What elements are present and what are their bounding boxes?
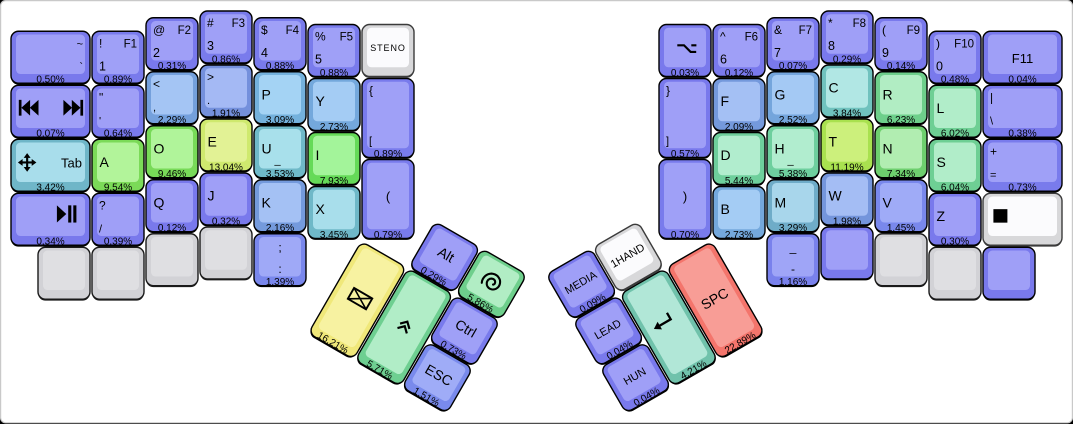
- svg-text:.: .: [207, 95, 210, 107]
- svg-text:0.64%: 0.64%: [104, 129, 132, 140]
- svg-text:2.09%: 2.09%: [725, 122, 753, 133]
- svg-text:F2: F2: [178, 25, 191, 37]
- svg-text:0.07%: 0.07%: [36, 129, 64, 140]
- svg-text:*: *: [828, 16, 833, 30]
- svg-text:I: I: [316, 147, 320, 163]
- svg-text:(: (: [882, 23, 886, 37]
- svg-text:N: N: [883, 140, 893, 156]
- svg-text:J: J: [208, 188, 215, 204]
- svg-text:0.32%: 0.32%: [212, 216, 240, 227]
- svg-text:Z: Z: [937, 208, 946, 224]
- svg-text:11.19%: 11.19%: [830, 162, 863, 173]
- svg-text:_: _: [274, 154, 282, 166]
- svg-text:+: +: [990, 144, 997, 158]
- svg-text:0.89%: 0.89%: [104, 75, 132, 86]
- svg-text:C: C: [829, 80, 839, 96]
- svg-text:F4: F4: [286, 25, 300, 37]
- svg-text:H: H: [775, 140, 785, 156]
- svg-text:F9: F9: [907, 25, 920, 37]
- svg-text:D: D: [721, 147, 731, 163]
- svg-text:=: =: [990, 169, 996, 181]
- svg-text:1.98%: 1.98%: [833, 216, 861, 227]
- svg-text:0.88%: 0.88%: [320, 68, 348, 79]
- svg-text:): ): [683, 189, 687, 204]
- svg-text:6.02%: 6.02%: [941, 129, 969, 140]
- svg-text:0.57%: 0.57%: [671, 149, 699, 160]
- svg-text:M: M: [775, 194, 787, 210]
- svg-text:Y: Y: [316, 93, 326, 109]
- svg-text:2.16%: 2.16%: [266, 223, 294, 234]
- svg-text::: :: [278, 262, 281, 276]
- svg-text:0.79%: 0.79%: [374, 230, 402, 241]
- svg-text:O: O: [154, 140, 165, 156]
- svg-text:5.44%: 5.44%: [725, 176, 753, 187]
- svg-text:9: 9: [882, 46, 889, 60]
- svg-text:2.52%: 2.52%: [779, 115, 807, 126]
- svg-text:6.23%: 6.23%: [887, 115, 915, 126]
- svg-text:@: @: [153, 23, 165, 37]
- svg-text:V: V: [883, 194, 893, 210]
- svg-text:3.42%: 3.42%: [36, 183, 64, 194]
- svg-text:W: W: [829, 188, 843, 204]
- svg-text:0.03%: 0.03%: [671, 68, 699, 79]
- svg-text:G: G: [775, 86, 786, 102]
- svg-text:0.30%: 0.30%: [941, 237, 969, 248]
- svg-text:4: 4: [261, 46, 268, 60]
- svg-text:`: `: [79, 61, 83, 73]
- svg-text:?: ?: [99, 198, 106, 212]
- svg-text:-: -: [791, 262, 795, 276]
- svg-text:Tab: Tab: [61, 155, 82, 170]
- svg-text:3: 3: [207, 39, 214, 53]
- svg-text:": ": [99, 90, 103, 104]
- svg-text:3.45%: 3.45%: [320, 230, 348, 241]
- svg-text:STENO: STENO: [370, 43, 406, 53]
- svg-text:0.04%: 0.04%: [1008, 75, 1036, 86]
- svg-text:2.29%: 2.29%: [158, 115, 186, 126]
- svg-text:7.93%: 7.93%: [320, 176, 348, 187]
- svg-text:E: E: [208, 134, 217, 150]
- svg-text:0.39%: 0.39%: [104, 237, 132, 248]
- svg-text:0.88%: 0.88%: [266, 61, 294, 72]
- svg-text:T: T: [829, 134, 838, 150]
- svg-text:8: 8: [828, 39, 835, 53]
- svg-text:<: <: [153, 77, 160, 91]
- svg-text:0.31%: 0.31%: [158, 61, 186, 72]
- svg-text:F3: F3: [232, 18, 245, 30]
- svg-text:_: _: [789, 240, 797, 254]
- svg-text:>: >: [207, 70, 214, 84]
- svg-text:[: [: [369, 136, 372, 148]
- svg-text:9.54%: 9.54%: [104, 183, 132, 194]
- svg-text:#: #: [207, 16, 214, 30]
- svg-text:F8: F8: [853, 18, 866, 30]
- svg-text:X: X: [316, 201, 326, 217]
- svg-text:9.46%: 9.46%: [158, 169, 186, 180]
- svg-text:{: {: [369, 84, 373, 98]
- svg-text:F11: F11: [1012, 51, 1033, 66]
- svg-text:0: 0: [936, 59, 943, 73]
- svg-text:2.73%: 2.73%: [320, 122, 348, 133]
- svg-text:3.09%: 3.09%: [266, 115, 294, 126]
- svg-text:~: ~: [77, 38, 83, 50]
- svg-text:0.12%: 0.12%: [725, 68, 753, 79]
- svg-text:_: _: [787, 154, 795, 166]
- svg-text:K: K: [262, 194, 272, 210]
- svg-text:F1: F1: [124, 38, 137, 50]
- svg-text:Q: Q: [154, 194, 165, 210]
- svg-text:]: ]: [666, 136, 669, 148]
- svg-text:0.29%: 0.29%: [833, 54, 861, 65]
- svg-text:F6: F6: [745, 32, 758, 44]
- svg-text:%: %: [315, 30, 326, 44]
- svg-text:|: |: [990, 90, 993, 104]
- svg-text:0.89%: 0.89%: [374, 149, 402, 160]
- svg-text:F5: F5: [340, 32, 353, 44]
- svg-text:F7: F7: [799, 25, 812, 37]
- svg-text:3.29%: 3.29%: [779, 223, 807, 234]
- svg-text:L: L: [937, 100, 945, 116]
- svg-text:0.34%: 0.34%: [36, 237, 64, 248]
- svg-text:1: 1: [99, 59, 106, 73]
- svg-text:&: &: [774, 23, 782, 37]
- svg-text:0.73%: 0.73%: [1008, 183, 1036, 194]
- svg-text:5.38%: 5.38%: [779, 169, 807, 180]
- svg-text:7.34%: 7.34%: [887, 169, 915, 180]
- svg-text:P: P: [262, 86, 271, 102]
- svg-text:2.73%: 2.73%: [725, 230, 753, 241]
- svg-text:F10: F10: [954, 38, 974, 50]
- svg-text:;: ;: [278, 240, 281, 254]
- svg-text:0.38%: 0.38%: [1008, 129, 1036, 140]
- svg-text:A: A: [100, 154, 110, 170]
- svg-text:2: 2: [153, 46, 160, 60]
- svg-text:6: 6: [720, 53, 727, 67]
- svg-text:U: U: [262, 140, 272, 156]
- svg-text:1.91%: 1.91%: [212, 108, 240, 119]
- svg-text:': ': [99, 115, 101, 127]
- svg-text:(: (: [386, 189, 391, 204]
- svg-text:1.45%: 1.45%: [887, 223, 915, 234]
- svg-text:0.12%: 0.12%: [158, 223, 186, 234]
- svg-text:S: S: [937, 154, 946, 170]
- svg-text:0.70%: 0.70%: [671, 230, 699, 241]
- svg-text:0.07%: 0.07%: [779, 61, 807, 72]
- svg-text:3.84%: 3.84%: [833, 108, 861, 119]
- svg-text:5: 5: [315, 53, 322, 67]
- svg-text:R: R: [883, 86, 893, 102]
- svg-text:^: ^: [720, 30, 726, 44]
- svg-text:$: $: [261, 23, 268, 37]
- svg-text:1.39%: 1.39%: [266, 277, 294, 288]
- svg-text:!: !: [99, 36, 102, 50]
- svg-text:0.50%: 0.50%: [36, 75, 64, 86]
- svg-text:0.86%: 0.86%: [212, 54, 240, 65]
- svg-text:F: F: [721, 93, 730, 109]
- svg-text:0.14%: 0.14%: [887, 61, 915, 72]
- svg-text:): ): [936, 36, 940, 50]
- svg-text:3.53%: 3.53%: [266, 169, 294, 180]
- svg-text:}: }: [666, 84, 670, 98]
- svg-text:13.04%: 13.04%: [209, 162, 243, 173]
- svg-text:,: ,: [153, 102, 156, 114]
- svg-text:B: B: [721, 201, 730, 217]
- svg-text:7: 7: [774, 46, 781, 60]
- svg-text:1.16%: 1.16%: [779, 277, 807, 288]
- svg-text:6.04%: 6.04%: [941, 183, 969, 194]
- svg-text:0.48%: 0.48%: [941, 75, 969, 86]
